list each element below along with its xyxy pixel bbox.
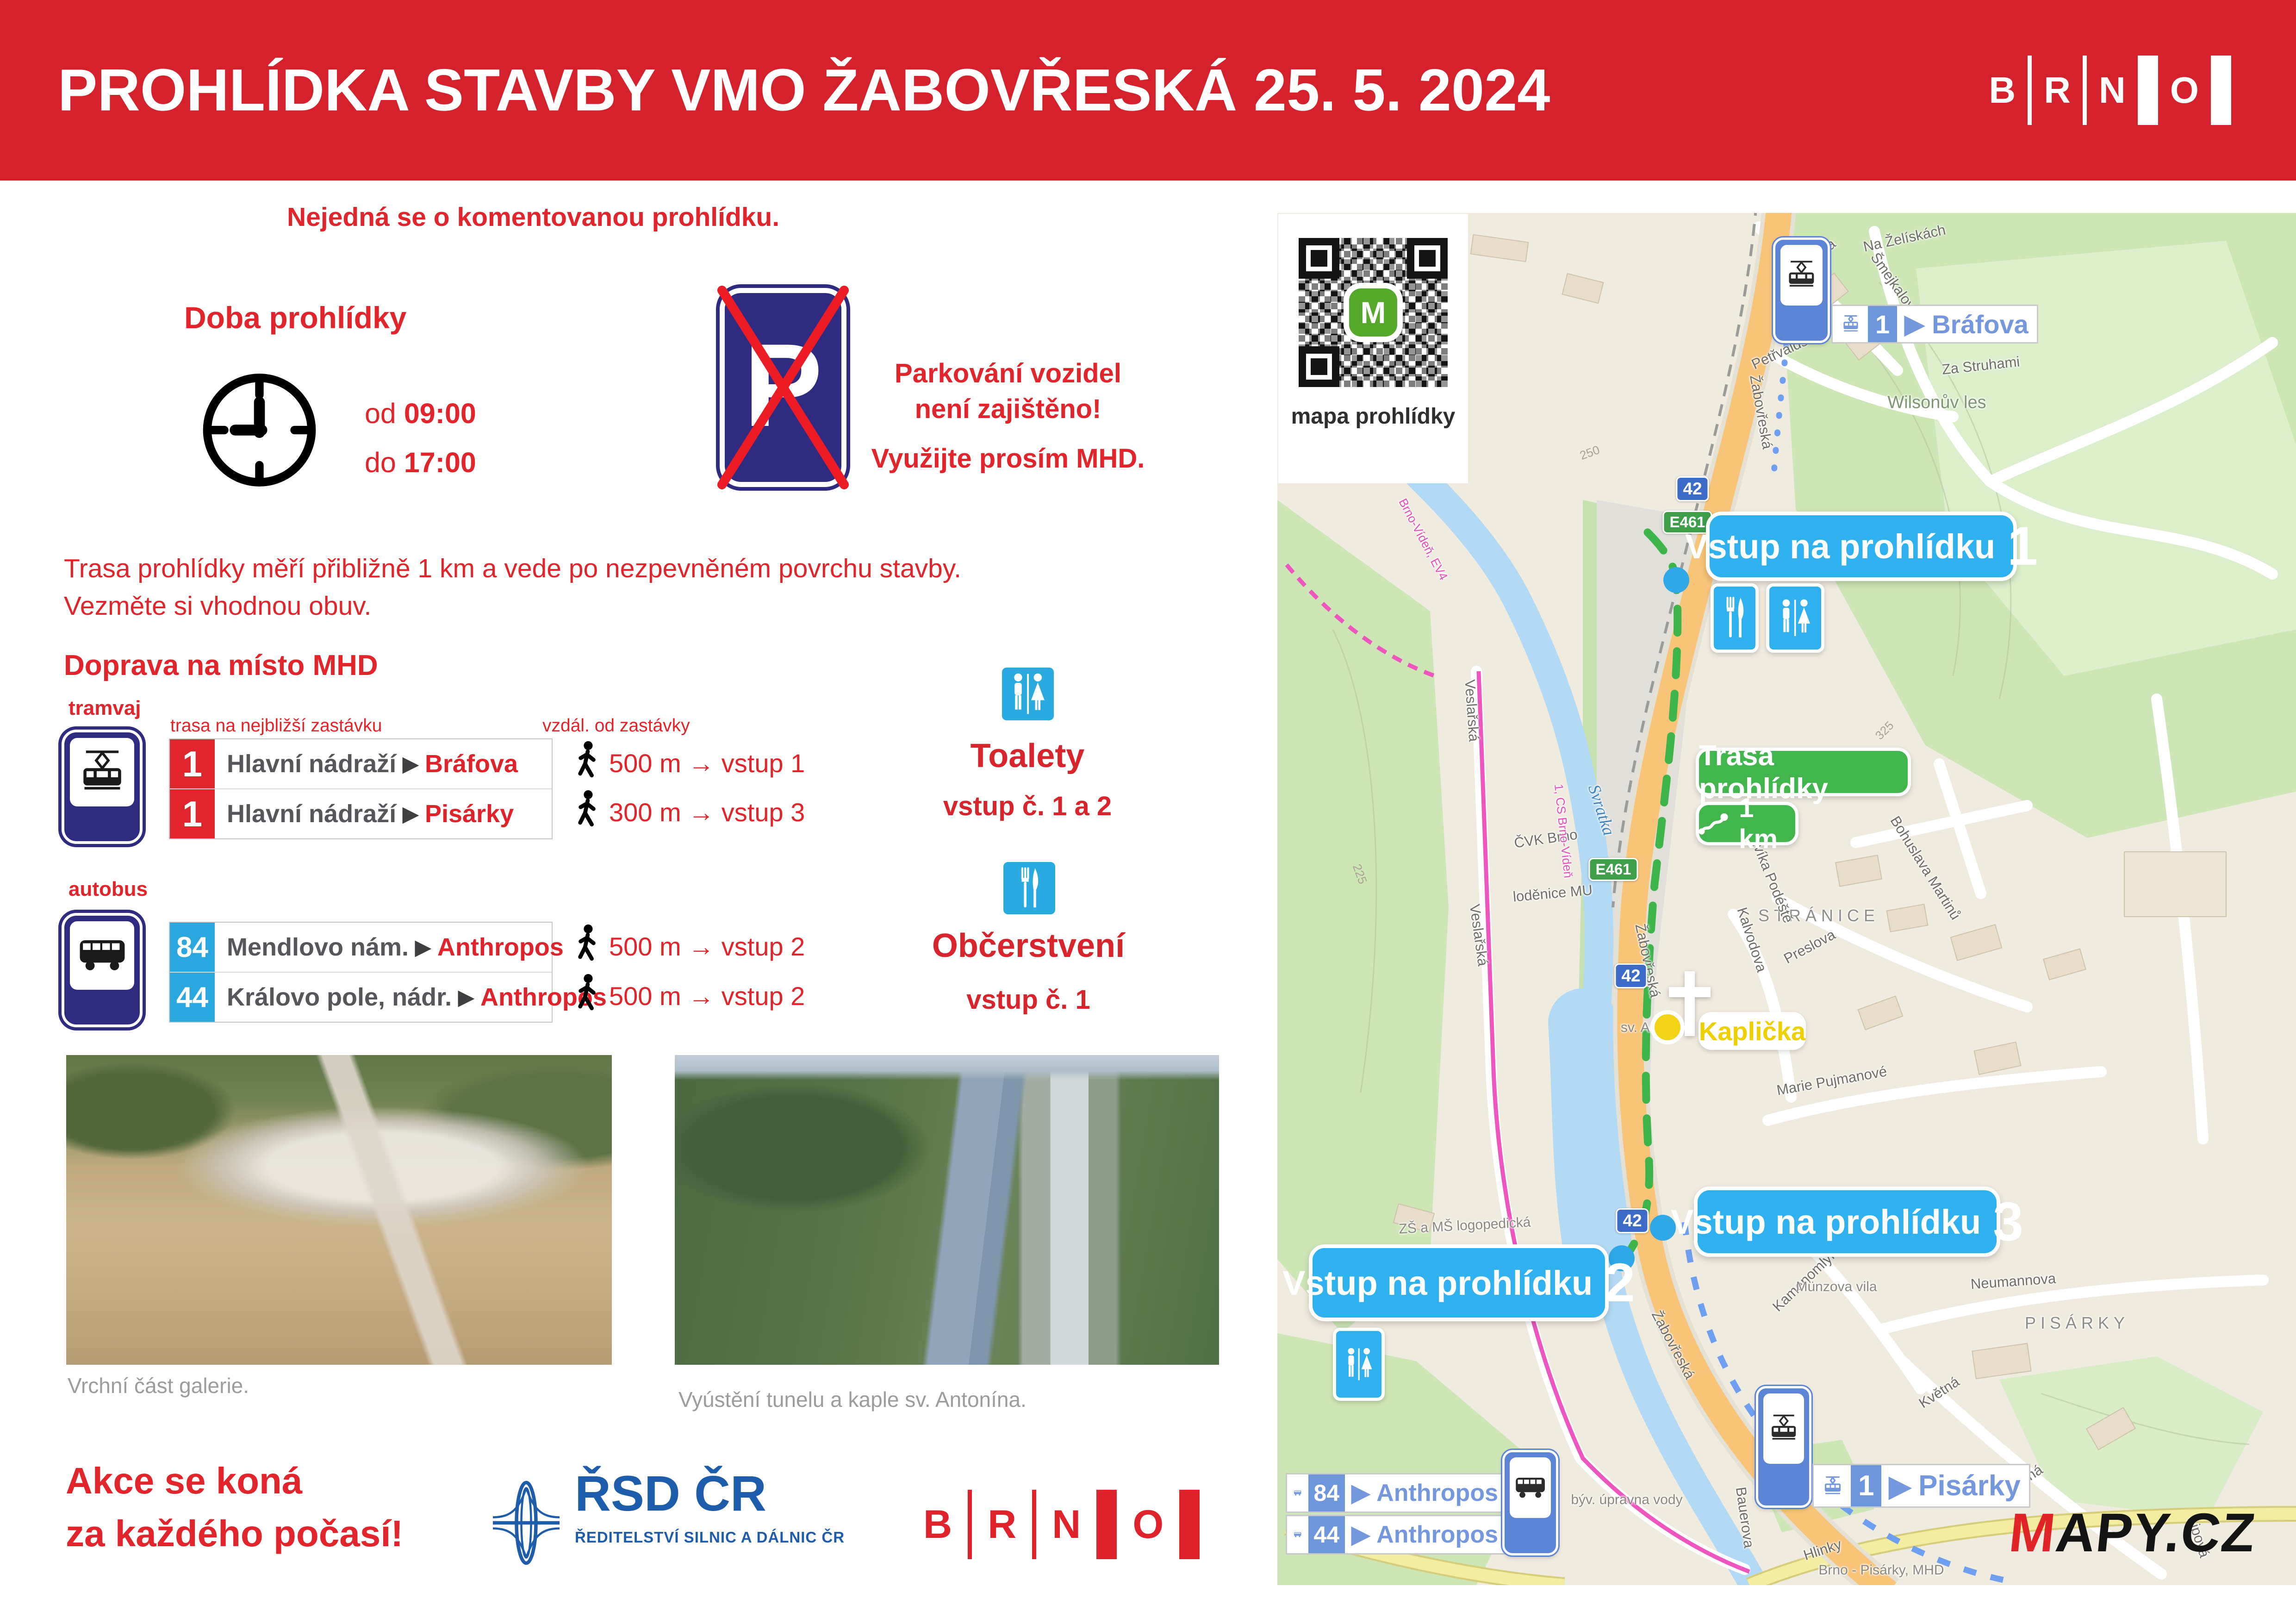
- qr-caption: mapa prohlídky: [1291, 404, 1456, 429]
- entrance-text: Vstup na prohlídku: [1282, 1263, 1593, 1303]
- bus-glyph: [1510, 1457, 1551, 1518]
- arrow-icon: ▶: [1351, 1521, 1370, 1549]
- distance-info: 300 m → vstup 3: [573, 787, 805, 837]
- map-bus-stop-sign: [1502, 1450, 1558, 1555]
- stop-from: Královo pole, nádr.: [227, 983, 452, 1012]
- distance-text: 500 m → vstup 1: [609, 748, 805, 778]
- brno-bar-thick: [2138, 56, 2158, 125]
- route-squiggle-icon: [1699, 811, 1730, 837]
- parking-line1: Parkování vozidel: [895, 358, 1121, 388]
- food-icon: [1003, 862, 1055, 914]
- distance-text: 500 m → vstup 2: [609, 981, 805, 1011]
- map-food-icon: [1711, 583, 1759, 653]
- bus-label: autobus: [68, 878, 148, 901]
- entrance-3-label: Vstup na prohlídku 3: [1694, 1187, 2000, 1257]
- tram-glyph: [70, 738, 134, 806]
- bus-icon: [1294, 1485, 1302, 1501]
- brno-letter: R: [2044, 72, 2071, 109]
- tram-route-cell: Hlavní nádraží▶Bráfova: [215, 739, 552, 788]
- tram-icon: [1841, 312, 1860, 336]
- map-street-label: PISÁRKY: [2025, 1313, 2129, 1333]
- brno-letter: O: [2170, 72, 2199, 109]
- mapycz-logo: MAPY.CZ: [2007, 1505, 2259, 1560]
- stop-to: Pisárky: [425, 800, 514, 828]
- map-street-label: Münzova vila: [1796, 1279, 1877, 1295]
- route-length-text: 1 km: [1739, 793, 1795, 855]
- tram-route-cell: Hlavní nádraží▶Pisárky: [215, 789, 552, 838]
- tram-glyph: [1763, 1393, 1804, 1464]
- entrance-1-label: Vstup na prohlídku 1: [1706, 512, 2017, 581]
- brno-logo: BRNO: [1989, 56, 2231, 125]
- mapy-m: M: [2006, 1502, 2059, 1563]
- photo-gallery-construction: [66, 1055, 612, 1365]
- map-toilets-icon: [1766, 583, 1824, 653]
- stop-name: Bráfova: [1932, 309, 2028, 339]
- bus-table: 84 Mendlovo nám.▶Anthropos 44 Královo po…: [169, 922, 553, 1023]
- brno-letter: R: [988, 1505, 1016, 1544]
- arrow-icon: ▶: [403, 802, 418, 826]
- stop-to: Anthropos: [437, 933, 564, 962]
- line-badge: 1: [1851, 1465, 1881, 1506]
- stop-name: Anthropos: [1376, 1479, 1498, 1507]
- toilets-subtitle: vstup č. 1 a 2: [879, 791, 1176, 822]
- bus-line-badge: 44: [170, 973, 215, 1022]
- distance-info: 500 m → vstup 1: [573, 738, 805, 787]
- parking-line2: není zajištěno!: [915, 394, 1101, 424]
- arrow-icon: ▶: [415, 936, 431, 959]
- photo-tunnel-chapel: [675, 1055, 1219, 1365]
- line-badge: 84: [1308, 1474, 1345, 1512]
- line-badge: 44: [1308, 1516, 1345, 1553]
- arrow-icon: ▶: [1904, 309, 1924, 339]
- route-label: Trasa prohlídky: [1696, 748, 1911, 796]
- route-info-line2: Vezměte si vhodnou obuv.: [64, 591, 371, 621]
- parking-line3: Využijte prosím MHD.: [869, 441, 1147, 476]
- entrance-text: Vstup na prohlídku: [1671, 1202, 1981, 1242]
- qr-finder-icon: [1407, 238, 1448, 279]
- stop-to: Bráfova: [425, 750, 518, 778]
- road-shield: 42: [1676, 476, 1709, 501]
- bus-icon: [1294, 1526, 1302, 1543]
- time-to-label: do: [365, 447, 396, 478]
- tram-label: tramvaj: [68, 697, 141, 720]
- map-toilets-icon: [1333, 1328, 1385, 1401]
- brno-letter: O: [1132, 1505, 1164, 1544]
- time-from: od 09:00: [365, 397, 476, 430]
- road-shield: 42: [1614, 963, 1647, 988]
- brno-bar-thick: [2211, 56, 2231, 125]
- tram-stop-label-brafova: 1 ▶ Bráfova: [1831, 305, 2038, 344]
- rsd-emblem-icon: [492, 1468, 561, 1577]
- tram-row: 1 Hlavní nádraží▶Bráfova: [170, 739, 552, 788]
- road-shield: E461: [1588, 858, 1638, 881]
- route-info-line1: Trasa prohlídky měří přibližně 1 km a ve…: [64, 554, 961, 583]
- qr-code: M: [1299, 238, 1448, 387]
- toilets-title: Toalety: [879, 737, 1176, 775]
- poster: PROHLÍDKA STAVBY VMO ŽABOVŘESKÁ 25. 5. 2…: [0, 0, 2296, 1624]
- tram-table: 1 Hlavní nádraží▶Bráfova 1 Hlavní nádraž…: [169, 738, 553, 839]
- distance-info: 500 m → vstup 2: [573, 922, 805, 971]
- page-title: PROHLÍDKA STAVBY VMO ŽABOVŘESKÁ 25. 5. 2…: [58, 56, 1550, 125]
- walking-icon: [573, 974, 602, 1018]
- food-subtitle: vstup č. 1: [880, 984, 1176, 1015]
- tram-icon: [1822, 1473, 1843, 1499]
- weather-note: Akce se koná za každého počasí!: [66, 1455, 403, 1560]
- weather-line2: za každého počasí!: [66, 1513, 403, 1554]
- mapy-rest: APY.CZ: [2053, 1502, 2259, 1563]
- bus-route-cell: Královo pole, nádr.▶Anthropos: [215, 973, 607, 1022]
- stop-from: Hlavní nádraží: [227, 750, 396, 778]
- chapel-dot: [1650, 1010, 1685, 1044]
- brno-bar-thin: [2028, 56, 2032, 125]
- walking-icon: [573, 790, 602, 834]
- entrance-number: 3: [1993, 1194, 2023, 1249]
- qr-finder-icon: [1299, 238, 1339, 279]
- entrance-dot: [1663, 567, 1689, 593]
- map-bus-stop-label: 84 ▶ Anthropos: [1286, 1473, 1506, 1513]
- photo-caption-2: Vyústění tunelu a kaple sv. Antonína.: [678, 1387, 1027, 1412]
- rsd-logo: ŘSD ČR ŘEDITELSTVÍ SILNIC A DÁLNIC ČR: [492, 1468, 845, 1577]
- parking-text: Parkování vozidel není zajištěno! Využij…: [869, 356, 1147, 476]
- arrow-icon: ▶: [1889, 1469, 1911, 1503]
- red-cross-icon: [716, 285, 850, 490]
- tram-line-badge: 1: [170, 739, 215, 788]
- qr-finder-icon: [1299, 346, 1339, 387]
- stop-name: Pisárky: [1918, 1469, 2021, 1502]
- map-street-label: Wilsonův les: [1887, 393, 1986, 413]
- walking-icon: [573, 741, 602, 785]
- bus-line-badge: 84: [170, 923, 215, 972]
- notice-text: Nejedná se o komentovanou prohlídku.: [287, 202, 779, 232]
- brno-logo-footer: BRNO: [923, 1490, 1200, 1559]
- stop-name: Anthropos: [1376, 1521, 1498, 1549]
- entrance-2-label: Vstup na prohlídku 2: [1309, 1244, 1609, 1321]
- distance-text: 500 m → vstup 2: [609, 931, 805, 962]
- header-banner: PROHLÍDKA STAVBY VMO ŽABOVŘESKÁ 25. 5. 2…: [0, 0, 2296, 181]
- bus-glyph: [70, 921, 134, 990]
- tram-stop-sign-icon: [62, 730, 143, 844]
- bus-route-cell: Mendlovo nám.▶Anthropos: [215, 923, 564, 972]
- time-to: do 17:00: [365, 446, 476, 479]
- line-badge: 1: [1868, 306, 1897, 342]
- transport-heading: Doprava na místo MHD: [64, 649, 378, 682]
- tour-map: Na ŽelískáchZa StruhamiNohavicovaŠmejkal…: [1277, 213, 2296, 1585]
- brno-letter: N: [1052, 1505, 1081, 1544]
- arrow-icon: ▶: [403, 752, 418, 776]
- rsd-name: ŘSD ČR: [575, 1468, 845, 1518]
- walking-icon: [573, 924, 602, 968]
- brno-letter: B: [923, 1505, 952, 1544]
- photo-caption-1: Vrchní část galerie.: [68, 1373, 249, 1398]
- tour-time-heading: Doba prohlídky: [184, 300, 406, 335]
- column-distance-header: vzdál. od zastávky: [542, 716, 690, 736]
- entrance-number: 2: [1605, 1255, 1635, 1310]
- route-label-text: Trasa prohlídky: [1699, 739, 1908, 805]
- map-bus-stop-label: 44 ▶ Anthropos: [1286, 1515, 1506, 1555]
- bus-row: 84 Mendlovo nám.▶Anthropos: [170, 923, 552, 972]
- column-route-header: trasa na nejbližší zastávku: [170, 716, 382, 736]
- brno-bar-thick: [1179, 1490, 1200, 1559]
- time-from-value: 09:00: [404, 398, 476, 429]
- tram-line-badge: 1: [170, 789, 215, 838]
- clock-icon: [198, 369, 321, 491]
- arrow-icon: ▶: [458, 986, 474, 1009]
- road-shield: 42: [1616, 1208, 1649, 1233]
- map-tram-stop-sign: [1756, 1386, 1811, 1508]
- brno-letter: B: [1989, 72, 2016, 109]
- qr-card: M mapa prohlídky: [1278, 214, 1468, 483]
- bus-stop-sign-icon: [62, 913, 143, 1027]
- route-info: Trasa prohlídky měří přibližně 1 km a ve…: [64, 550, 961, 625]
- distance-text: 300 m → vstup 3: [609, 797, 805, 827]
- stop-from: Mendlovo nám.: [227, 933, 409, 962]
- time-to-value: 17:00: [404, 447, 476, 478]
- bus-row: 44 Královo pole, nádr.▶Anthropos: [170, 972, 552, 1022]
- no-parking-sign: P: [720, 288, 846, 487]
- tram-stop-label-pisarky: 1 ▶ Pisárky: [1812, 1464, 2030, 1508]
- map-street-label: býv. úpravna vody: [1571, 1492, 1682, 1508]
- time-from-label: od: [365, 398, 396, 429]
- tram-glyph: [1780, 245, 1823, 306]
- brno-bar-thin: [1032, 1490, 1036, 1559]
- rsd-text: ŘSD ČR ŘEDITELSTVÍ SILNIC A DÁLNIC ČR: [575, 1468, 845, 1546]
- weather-line1: Akce se koná: [66, 1460, 302, 1501]
- arrow-icon: ▶: [1351, 1479, 1370, 1507]
- distance-info: 500 m → vstup 2: [573, 971, 805, 1020]
- route-length-label: 1 km: [1696, 802, 1798, 845]
- brno-letter: N: [2099, 72, 2126, 109]
- brno-bar-thin: [968, 1490, 972, 1559]
- entrance-text: Vstup na prohlídku: [1685, 527, 1995, 566]
- rsd-subtitle: ŘEDITELSTVÍ SILNIC A DÁLNIC ČR: [575, 1529, 845, 1546]
- entrance-number: 1: [2007, 519, 2038, 574]
- chapel-label: Kaplička: [1699, 1012, 1806, 1050]
- toilets-icon: [1002, 668, 1054, 720]
- map-tram-stop-sign: [1773, 237, 1830, 343]
- food-title: Občerstvení: [880, 927, 1176, 965]
- mapy-m-badge: M: [1349, 288, 1397, 337]
- brno-bar-thin: [2083, 56, 2087, 125]
- stop-from: Hlavní nádraží: [227, 800, 396, 828]
- tram-row: 1 Hlavní nádraží▶Pisárky: [170, 788, 552, 838]
- brno-bar-thick: [1096, 1490, 1117, 1559]
- map-street-label: Brno - Pisárky, MHD: [1818, 1562, 1944, 1578]
